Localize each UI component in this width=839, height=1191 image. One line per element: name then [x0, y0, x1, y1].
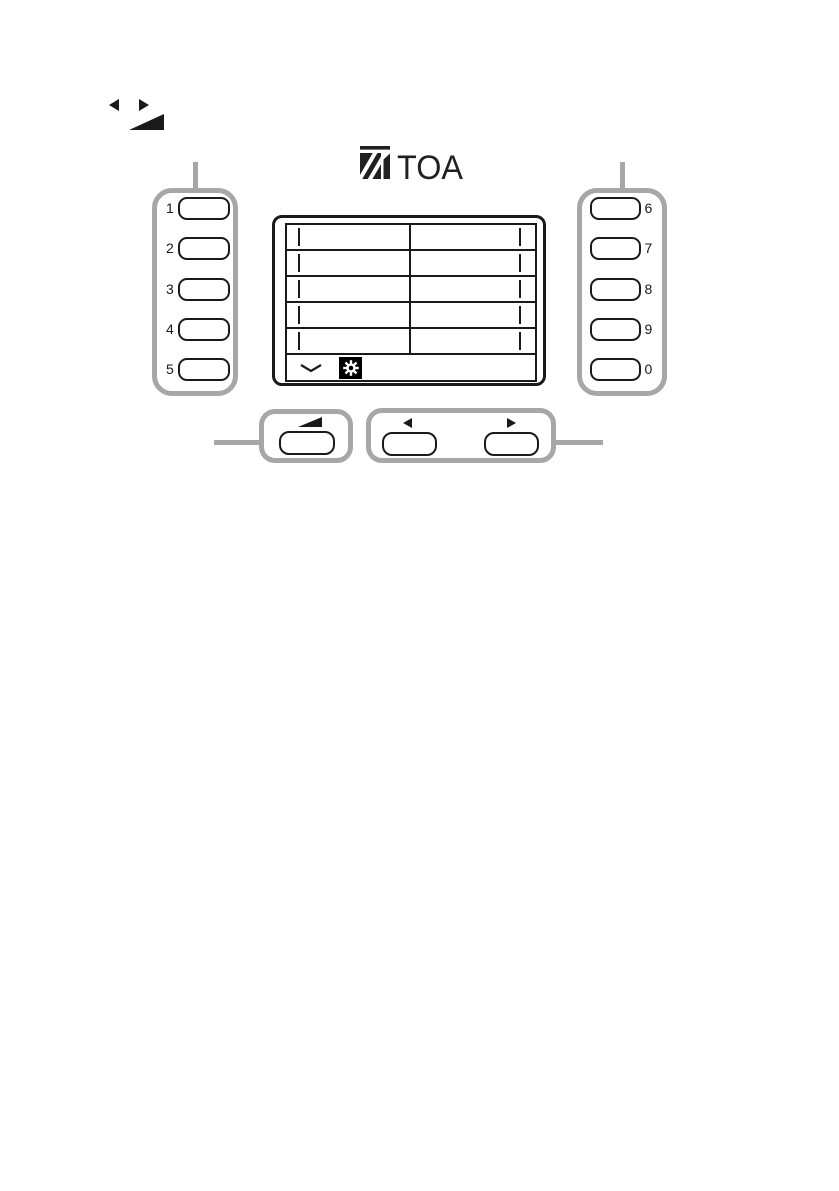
- key-5[interactable]: [178, 358, 230, 381]
- key-9-label: 9: [641, 318, 656, 341]
- legend-right-arrow-icon: [139, 99, 149, 111]
- display-cell: [287, 225, 411, 249]
- display-cell: [411, 329, 535, 353]
- key-0[interactable]: [590, 358, 641, 381]
- left-arrow-icon: [403, 418, 412, 428]
- gear-icon: [342, 359, 360, 377]
- key-1[interactable]: [178, 197, 230, 220]
- key-row: 7: [582, 237, 662, 260]
- left-arrow-button[interactable]: [382, 432, 437, 456]
- key-row: 3: [157, 278, 233, 301]
- key-7[interactable]: [590, 237, 641, 260]
- volume-ramp-icon: [298, 417, 322, 427]
- display-cell: [287, 329, 411, 353]
- key-row: 5: [157, 358, 233, 381]
- key-row: 8: [582, 278, 662, 301]
- display-row: [287, 303, 535, 329]
- key-row: 1: [157, 197, 233, 220]
- key-8[interactable]: [590, 278, 641, 301]
- key-0-label: 0: [641, 358, 656, 381]
- text-cursor-mark: [519, 254, 521, 272]
- key-3-label: 3: [162, 278, 178, 301]
- volume-button-callout: [259, 409, 353, 463]
- display-cell: [411, 251, 535, 275]
- key-9[interactable]: [590, 318, 641, 341]
- left-keypad-callout: 1 2 3 4 5: [152, 188, 238, 396]
- display-row: [287, 277, 535, 303]
- display-cell: [287, 303, 411, 327]
- key-row: 9: [582, 318, 662, 341]
- lcd-display: [272, 215, 546, 386]
- key-row: 6: [582, 197, 662, 220]
- text-cursor-mark: [298, 280, 300, 298]
- text-cursor-mark: [298, 332, 300, 350]
- legend-left-arrow-icon: [109, 99, 119, 111]
- text-cursor-mark: [298, 254, 300, 272]
- key-4-label: 4: [162, 318, 178, 341]
- toa-logo-icon: TOA: [360, 146, 470, 184]
- display-footer: [287, 355, 535, 380]
- brand-logo: TOA: [360, 146, 470, 189]
- key-6-label: 6: [641, 197, 656, 220]
- settings-button[interactable]: [339, 357, 362, 379]
- key-2[interactable]: [178, 237, 230, 260]
- display-row: [287, 251, 535, 277]
- key-1-label: 1: [162, 197, 178, 220]
- right-arrow-button[interactable]: [484, 432, 539, 456]
- text-cursor-mark: [298, 228, 300, 246]
- text-cursor-mark: [519, 306, 521, 324]
- key-4[interactable]: [178, 318, 230, 341]
- scroll-down-chevron-icon[interactable]: [300, 363, 322, 373]
- manual-page: { "brand": { "logo_text": "TOA" }, "lege…: [0, 0, 839, 1191]
- key-row: 2: [157, 237, 233, 260]
- key-row: 4: [157, 318, 233, 341]
- right-arrow-icon: [507, 418, 516, 428]
- display-row: [287, 225, 535, 251]
- text-cursor-mark: [519, 332, 521, 350]
- callout-leader-line-arrows: [553, 440, 603, 445]
- volume-button[interactable]: [279, 431, 335, 455]
- right-keypad-callout: 6 7 8 9 0: [577, 188, 667, 396]
- logo-text: TOA: [397, 149, 463, 184]
- key-3[interactable]: [178, 278, 230, 301]
- legend-volume-ramp-icon: [129, 114, 164, 130]
- text-cursor-mark: [519, 280, 521, 298]
- callout-leader-line-volume: [214, 440, 262, 445]
- text-cursor-mark: [298, 306, 300, 324]
- lcd-screen: [285, 223, 537, 382]
- display-cell: [287, 277, 411, 301]
- key-8-label: 8: [641, 278, 656, 301]
- text-cursor-mark: [519, 228, 521, 246]
- display-cell: [287, 251, 411, 275]
- display-cell: [411, 303, 535, 327]
- key-row: 0: [582, 358, 662, 381]
- key-2-label: 2: [162, 237, 178, 260]
- arrow-buttons-callout: [366, 408, 556, 463]
- key-7-label: 7: [641, 237, 656, 260]
- display-row: [287, 329, 535, 355]
- key-6[interactable]: [590, 197, 641, 220]
- key-5-label: 5: [162, 358, 178, 381]
- display-cell: [411, 225, 535, 249]
- display-cell: [411, 277, 535, 301]
